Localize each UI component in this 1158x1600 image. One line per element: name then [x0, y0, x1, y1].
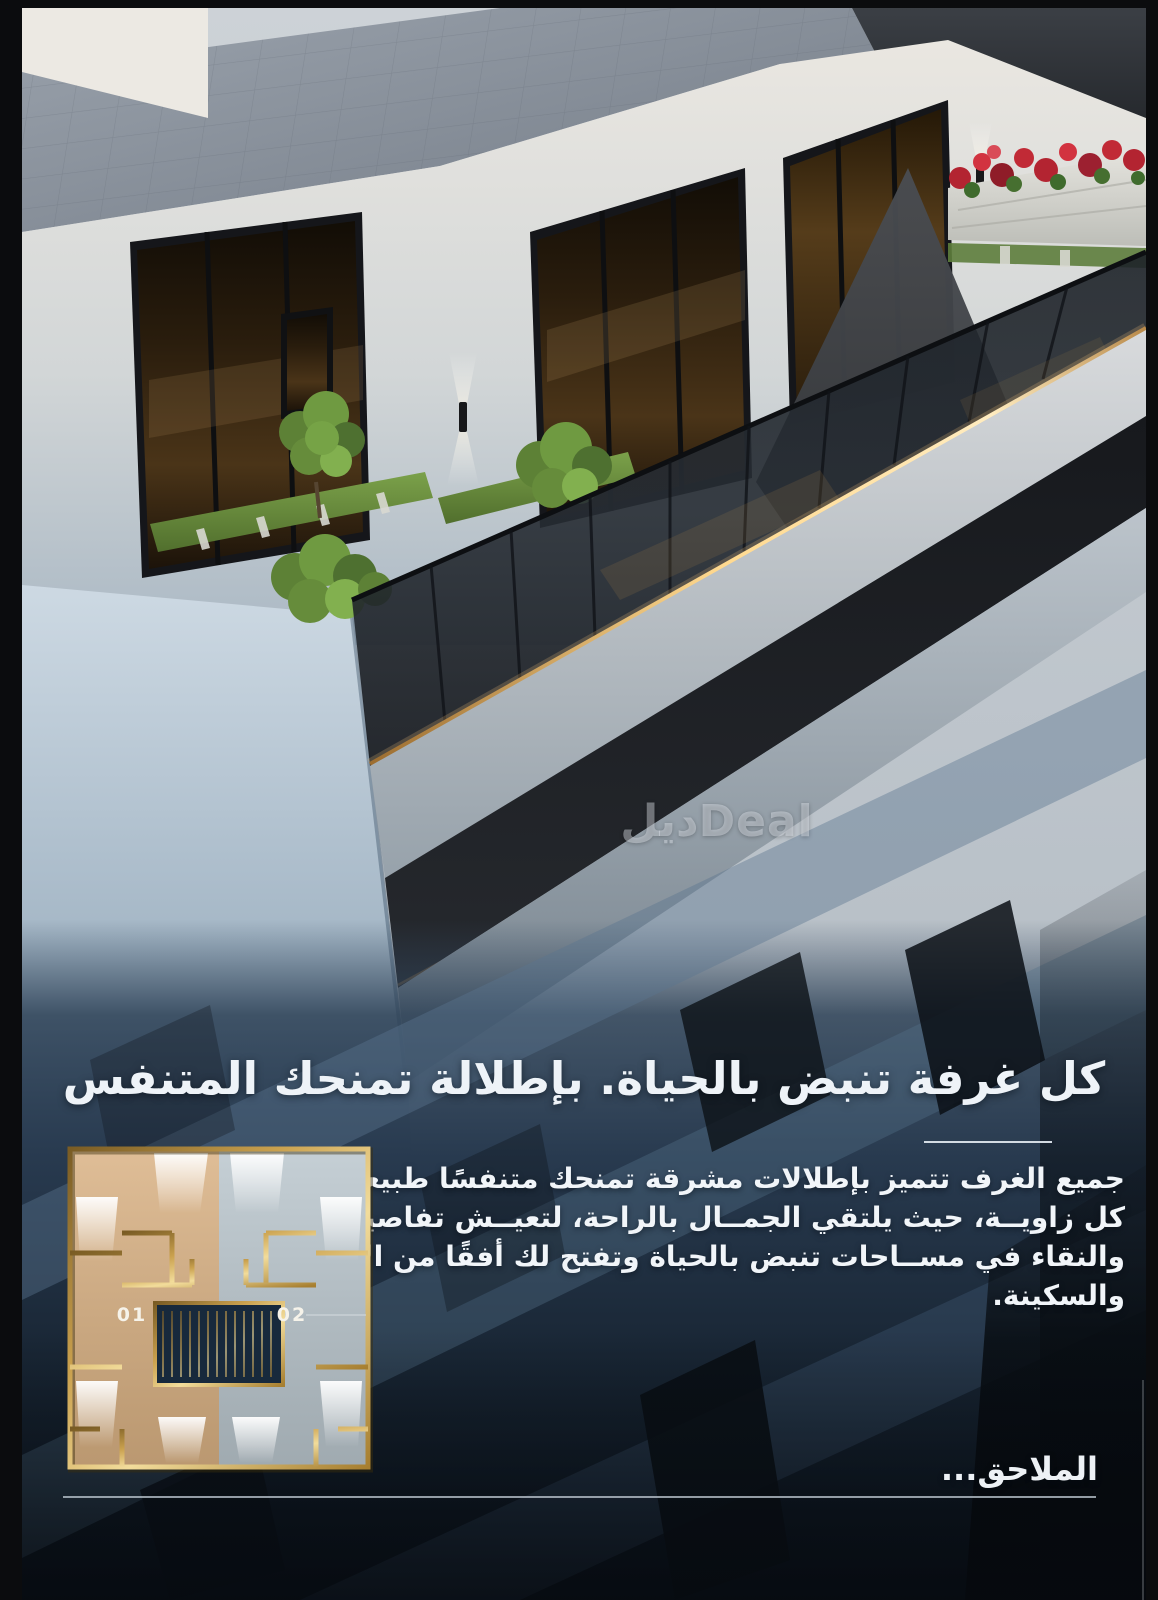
unit-02-label: 02 — [277, 1304, 307, 1326]
unit-01-label: 01 — [117, 1304, 147, 1326]
footer-divider — [63, 1496, 1096, 1498]
page-title: كل غرفة تنبض بالحياة. بإطلالة تمنحك المت… — [22, 1047, 1146, 1111]
paragraph-divider — [924, 1141, 1052, 1143]
description-paragraph: جميع الغرف تتميز بإطلالات مشرقة تمنحك مت… — [385, 1159, 1125, 1315]
plan-stair-core — [155, 1303, 283, 1385]
annex-section-label: الملاحق... — [941, 1450, 1098, 1488]
deal-logo-watermark: ديلDeal — [592, 796, 842, 847]
paragraph-line: والنقاء في مســاحات تنبض بالحياة وتفتح ل… — [385, 1237, 1125, 1276]
brochure-page: ديلDeal كل غرفة تنبض بالحياة. بإطلالة تم… — [0, 0, 1158, 1600]
floor-plan-image: 01 02 — [60, 1133, 378, 1483]
paragraph-line: والسكينة. — [385, 1276, 1125, 1315]
paragraph-line: كل زاويــة، حيث يلتقي الجمــال بالراحة، … — [385, 1198, 1125, 1237]
flower-planter — [948, 140, 1146, 268]
paragraph-line: جميع الغرف تتميز بإطلالات مشرقة تمنحك مت… — [385, 1159, 1125, 1198]
